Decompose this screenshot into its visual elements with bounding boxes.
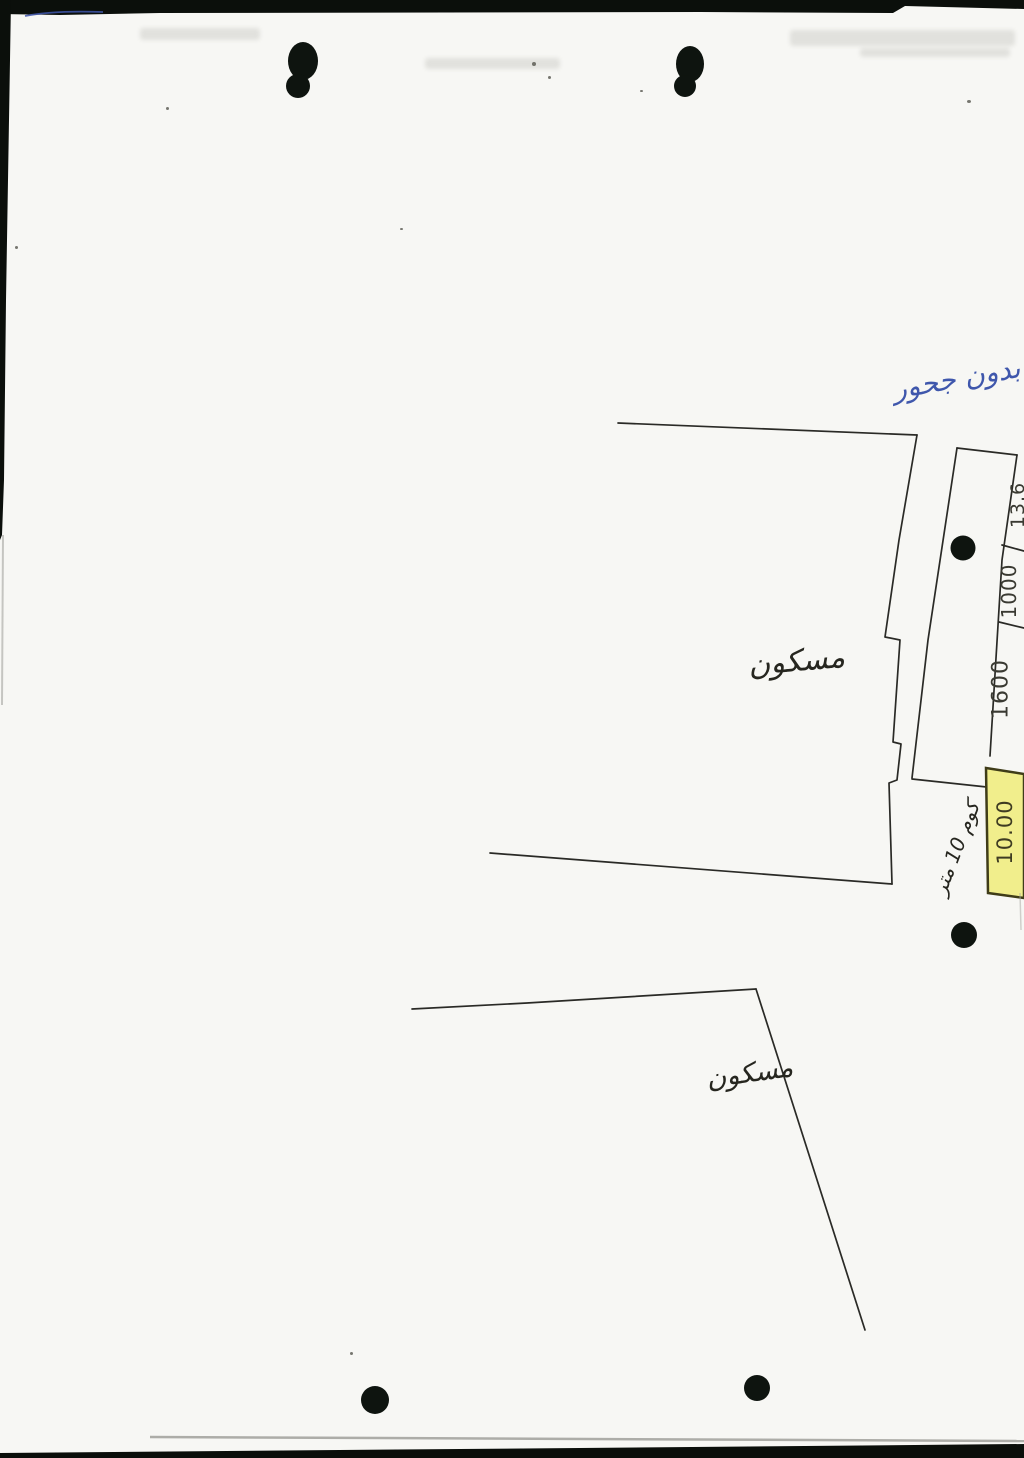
- scan-dot-right-upper: [951, 536, 976, 561]
- upper-plot-bottom-boundary: [490, 853, 892, 884]
- measurement-cell-2-value: 1000: [997, 564, 1021, 619]
- page-edge-faint-mark: [1020, 893, 1021, 930]
- upper-plot-top-boundary: [618, 423, 917, 435]
- scan-edge-bottom: [0, 1444, 1024, 1458]
- scan-speck: [15, 246, 18, 249]
- scan-edge-left: [0, 0, 11, 540]
- scan-speck: [532, 62, 536, 66]
- punch-hole-top-left: [286, 42, 318, 98]
- measurement-cell-highlighted-value: 10.00: [993, 799, 1017, 864]
- ghost-text-smudge: [790, 30, 1015, 46]
- paper-bottom-edge-line: [150, 1437, 1024, 1441]
- ghost-text-smudge: [425, 58, 560, 69]
- lower-plot-top-boundary: [412, 989, 756, 1009]
- scan-speck: [548, 76, 551, 79]
- measurement-cell-3-value: 1600: [989, 659, 1014, 719]
- punch-hole-bottom-left: [361, 1386, 389, 1414]
- scan-speck: [166, 107, 169, 110]
- ghost-text-smudge: [860, 48, 1010, 57]
- punch-hole-top-right: [674, 46, 704, 97]
- strip-top-edge: [957, 448, 1017, 455]
- scanned-survey-sheet: بدون جحور مسكون مسكون كوم 10 متر 13.6 10…: [0, 0, 1024, 1458]
- scan-edge-left-faint: [2, 535, 3, 705]
- scan-speck: [350, 1352, 353, 1355]
- ghost-text-smudge: [140, 28, 260, 40]
- scan-speck: [967, 100, 971, 103]
- scan-dot-right-lower: [951, 922, 977, 948]
- scan-speck: [640, 90, 643, 92]
- cell-divider-2: [999, 622, 1024, 628]
- measurement-cell-1-value: 13.6: [1007, 482, 1024, 528]
- cell-divider-1: [1002, 545, 1024, 551]
- survey-sketch-canvas: [0, 0, 1024, 1458]
- punch-hole-bottom-right: [744, 1375, 770, 1401]
- scan-speck: [400, 228, 403, 230]
- lower-plot-right-boundary: [756, 989, 865, 1330]
- scan-edge-top: [0, 0, 1024, 15]
- upper-plot-right-boundary: [885, 435, 917, 884]
- strip-left-edge: [912, 448, 957, 778]
